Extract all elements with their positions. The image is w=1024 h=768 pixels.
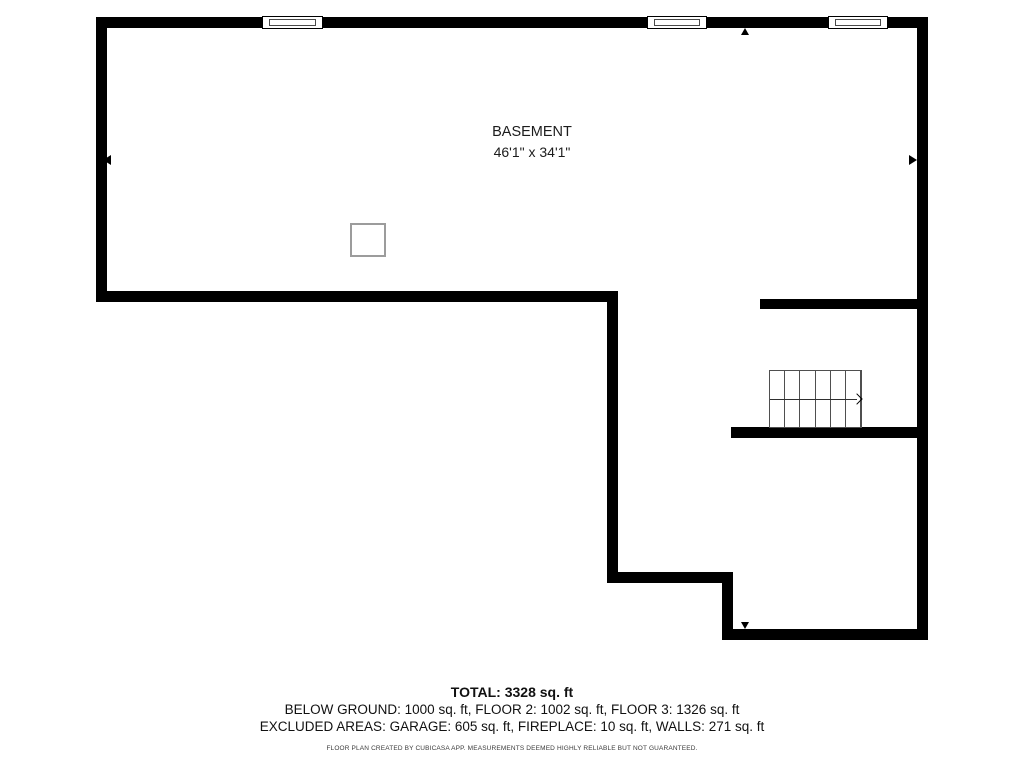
disclaimer-text: FLOOR PLAN CREATED BY CUBICASA APP. MEAS… xyxy=(326,745,697,752)
east-direction-arrow-icon xyxy=(909,155,917,165)
window-1 xyxy=(262,16,323,29)
total-area: TOTAL: 3328 sq. ft xyxy=(260,684,764,701)
lower-horizontal-wall xyxy=(607,572,733,583)
window-3 xyxy=(828,16,888,29)
stair-direction-line xyxy=(770,399,857,400)
right-wall xyxy=(917,17,928,640)
mid-vertical-wall xyxy=(607,291,618,582)
floor-areas: BELOW GROUND: 1000 sq. ft, FLOOR 2: 1002… xyxy=(260,701,764,718)
stair-room-north-wall xyxy=(760,299,917,309)
stair-room-south-wall xyxy=(731,427,917,438)
west-direction-arrow-icon xyxy=(103,155,111,165)
window-2-pane xyxy=(654,19,700,26)
north-direction-arrow-icon xyxy=(741,28,749,35)
floor-plan-page: BASEMENT 46'1" x 34'1" TOTAL: 3328 sq. f… xyxy=(0,0,1024,768)
excluded-areas: EXCLUDED AREAS: GARAGE: 605 sq. ft, FIRE… xyxy=(260,718,764,735)
window-2 xyxy=(647,16,707,29)
south-direction-arrow-icon xyxy=(741,622,749,629)
staircase xyxy=(769,370,862,428)
room-label: BASEMENT 46'1" x 34'1" xyxy=(492,122,572,162)
bottom-wall xyxy=(722,629,928,640)
basement-south-wall xyxy=(96,291,618,302)
room-dimensions: 46'1" x 34'1" xyxy=(492,142,572,162)
top-wall xyxy=(96,17,928,28)
support-column xyxy=(350,223,386,257)
window-3-pane xyxy=(835,19,881,26)
area-summary: TOTAL: 3328 sq. ft BELOW GROUND: 1000 sq… xyxy=(260,684,764,736)
window-1-pane xyxy=(269,19,316,26)
floor-plan: BASEMENT 46'1" x 34'1" xyxy=(0,0,1024,660)
room-name: BASEMENT xyxy=(492,122,572,142)
